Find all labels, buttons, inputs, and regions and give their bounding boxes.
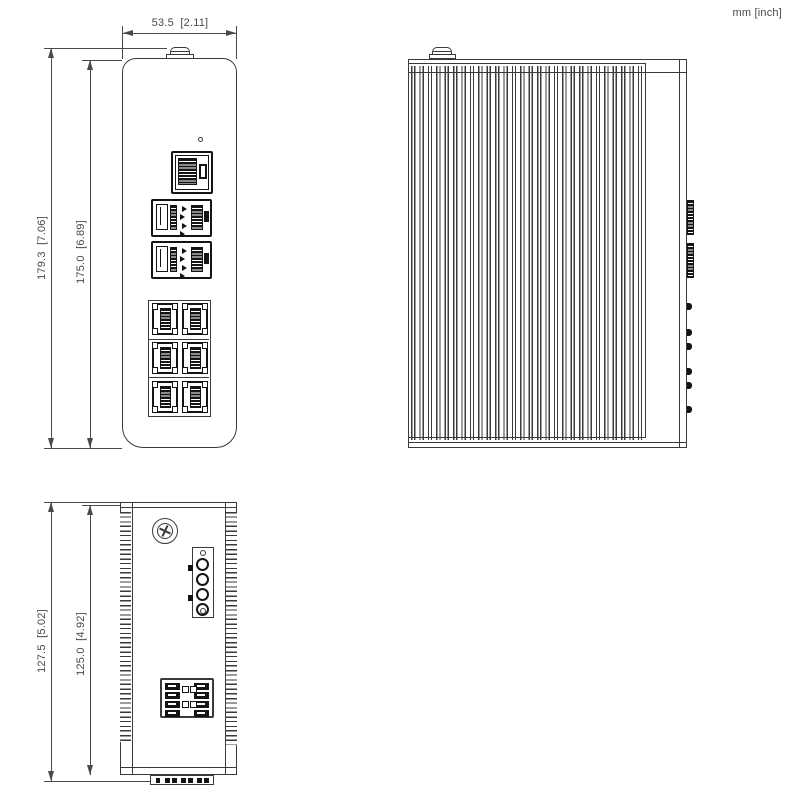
port-pins xyxy=(190,347,201,369)
combo-port-side-profile xyxy=(687,200,694,235)
rj45-port xyxy=(152,303,178,335)
rj45-port xyxy=(182,381,208,413)
triangle-icon xyxy=(182,206,187,212)
triangle-icon xyxy=(180,273,185,279)
port-tab xyxy=(202,342,208,349)
port-latch xyxy=(204,211,209,222)
top-panel xyxy=(120,502,237,775)
sfp-arrows xyxy=(180,204,187,239)
port-edge xyxy=(165,778,170,783)
port-strip xyxy=(150,775,214,785)
arrowhead xyxy=(48,438,54,448)
sfp-slot xyxy=(156,246,168,272)
port-edge xyxy=(156,778,160,783)
dim-front-height-total: 179.3 [7.06] xyxy=(36,188,48,308)
port-pins xyxy=(191,247,203,272)
port-tab xyxy=(172,367,178,374)
rj45-latch-profile xyxy=(687,329,692,336)
port-tab xyxy=(152,367,158,374)
rj45-latch-profile xyxy=(687,382,692,389)
extension-line xyxy=(44,502,120,503)
port-tab xyxy=(172,381,178,388)
terminal-tab xyxy=(188,565,193,571)
port-tab xyxy=(172,342,178,349)
extension-line xyxy=(44,448,122,449)
mini-connector xyxy=(182,701,189,708)
combo-port-2 xyxy=(151,241,212,279)
frame-line xyxy=(409,442,686,443)
triangle-icon xyxy=(180,231,185,237)
arrowhead xyxy=(123,30,133,36)
arrowhead xyxy=(87,60,93,70)
port-latch xyxy=(204,253,209,264)
mount-hole xyxy=(200,608,206,614)
heatsink-fins xyxy=(411,66,645,440)
port-tab xyxy=(182,367,188,374)
arrowhead xyxy=(48,502,54,512)
terminal-tab xyxy=(188,595,193,601)
port-tab xyxy=(202,367,208,374)
dip-cell xyxy=(165,692,180,699)
port-pins xyxy=(170,205,177,230)
port-latch xyxy=(199,164,207,179)
arrowhead xyxy=(48,48,54,58)
rj45-latch-profile xyxy=(687,343,692,350)
dip-cell xyxy=(194,710,209,717)
mini-connector xyxy=(190,686,197,693)
dip-cell xyxy=(165,683,180,690)
heatsink-fins-left xyxy=(120,512,131,742)
arrowhead xyxy=(226,30,236,36)
dim-line xyxy=(51,502,52,781)
dim-front-width: 53.5 [2.11] xyxy=(120,17,240,29)
console-port xyxy=(171,151,213,194)
rj45-port xyxy=(182,303,208,335)
port-tab xyxy=(202,406,208,413)
slot-line xyxy=(160,249,161,267)
port-tab xyxy=(172,303,178,310)
combo-port-side-profile xyxy=(687,243,694,278)
fin-top-line xyxy=(409,63,646,64)
port-edge xyxy=(181,778,186,783)
dim-top-depth-total: 127.5 [5.02] xyxy=(36,581,48,701)
power-terminal-block xyxy=(192,547,214,618)
port-pins xyxy=(170,247,177,272)
grid-divider xyxy=(149,339,209,340)
terminal-pin xyxy=(196,573,209,586)
slot-line xyxy=(160,207,161,225)
port-tab xyxy=(152,381,158,388)
dip-cell xyxy=(165,710,180,717)
screw-detail-line xyxy=(433,51,451,52)
triangle-icon xyxy=(180,214,185,220)
port-tab xyxy=(182,303,188,310)
triangle-icon xyxy=(182,248,187,254)
screw-detail-line xyxy=(171,51,189,52)
dim-line xyxy=(90,505,91,775)
port-tab xyxy=(172,328,178,335)
dim-top-depth-body: 125.0 [4.92] xyxy=(75,584,87,704)
port-tab xyxy=(152,328,158,335)
fin-end-line xyxy=(645,63,646,438)
port-tab xyxy=(152,342,158,349)
port-edge xyxy=(188,778,193,783)
port-tab xyxy=(182,328,188,335)
dim-line xyxy=(90,60,91,448)
extension-line xyxy=(236,26,237,59)
port-pins xyxy=(160,308,171,330)
port-tab xyxy=(172,406,178,413)
mini-connector xyxy=(182,686,189,693)
arrowhead xyxy=(87,505,93,515)
combo-port-1 xyxy=(151,199,212,237)
mount-hole xyxy=(200,550,206,556)
extension-line xyxy=(44,48,167,49)
port-tab xyxy=(202,303,208,310)
extension-line xyxy=(122,26,123,59)
port-pins xyxy=(160,347,171,369)
port-tab xyxy=(152,303,158,310)
arrowhead xyxy=(87,438,93,448)
dip-cell xyxy=(194,692,209,699)
dip-cell xyxy=(165,701,180,708)
port-pins xyxy=(190,386,201,408)
frame-line xyxy=(121,767,236,768)
port-edge xyxy=(204,778,209,783)
frame-line xyxy=(121,507,236,508)
rj45-latch-profile xyxy=(687,406,692,413)
heatsink-fins-right xyxy=(226,512,237,745)
led-indicator xyxy=(198,137,203,142)
arrowhead xyxy=(87,765,93,775)
port-tab xyxy=(182,406,188,413)
port-edge xyxy=(172,778,177,783)
arrowhead xyxy=(48,771,54,781)
side-wall-line xyxy=(132,503,133,774)
port-pins xyxy=(190,308,201,330)
port-tab xyxy=(202,328,208,335)
port-tab xyxy=(152,406,158,413)
dim-line xyxy=(51,48,52,448)
dip-switch-block xyxy=(160,678,214,718)
port-pins xyxy=(178,158,197,185)
rj45-latch-profile xyxy=(687,303,692,310)
triangle-icon xyxy=(180,256,185,262)
rj45-port xyxy=(152,381,178,413)
dimension-drawing: mm [inch] 53.5 [2.11] 179.3 [7.06] 175.0… xyxy=(0,0,800,800)
mini-connector xyxy=(190,701,197,708)
rj45-port xyxy=(182,342,208,374)
port-tab xyxy=(182,342,188,349)
port-tab xyxy=(202,381,208,388)
front-bezel-line xyxy=(679,60,680,447)
rj45-port xyxy=(152,342,178,374)
rj45-latch-profile xyxy=(687,368,692,375)
terminal-pin xyxy=(196,558,209,571)
port-pins xyxy=(160,386,171,408)
fin-bottom-line xyxy=(409,437,646,438)
dim-front-height-body: 175.0 [6.89] xyxy=(75,192,87,312)
terminal-pin xyxy=(196,588,209,601)
triangle-icon xyxy=(182,265,187,271)
sfp-slot xyxy=(156,204,168,230)
grid-divider xyxy=(149,377,209,378)
port-edge xyxy=(197,778,202,783)
port-tab xyxy=(182,381,188,388)
units-label: mm [inch] xyxy=(662,7,782,19)
dim-line xyxy=(123,33,236,34)
port-pins xyxy=(191,205,203,230)
triangle-icon xyxy=(182,223,187,229)
sfp-arrows xyxy=(180,246,187,281)
